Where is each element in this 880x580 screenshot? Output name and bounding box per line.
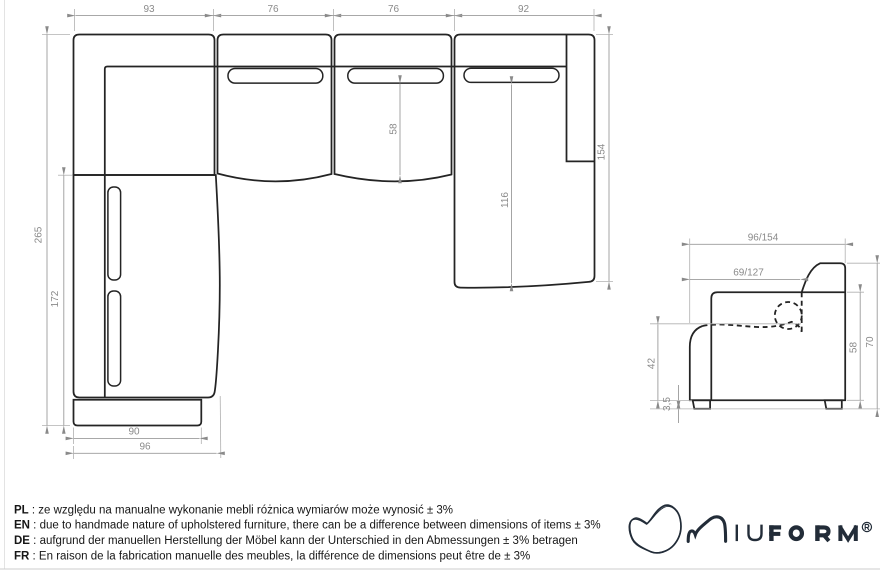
svg-text:76: 76 [267,4,279,15]
svg-text:90: 90 [128,427,140,438]
svg-text:58: 58 [389,123,400,135]
svg-text:92: 92 [518,4,530,15]
svg-text:172: 172 [50,290,61,307]
svg-text:154: 154 [597,143,608,160]
svg-text:PL : ze względu na manualne wy: PL : ze względu na manualne wykonanie me… [14,504,453,516]
svg-text:EN : due to handmade nature of: EN : due to handmade nature of upholster… [14,519,601,531]
svg-text:69/127: 69/127 [733,268,764,279]
svg-text:DE : aufgrund der manuellen He: DE : aufgrund der manuellen Herstellung … [14,535,578,547]
svg-text:42: 42 [647,358,658,370]
svg-text:116: 116 [500,192,511,208]
svg-text:58: 58 [849,342,860,354]
svg-text:265: 265 [34,226,45,243]
svg-text:70: 70 [865,336,876,348]
svg-text:FR : En raison de la fabricati: FR : En raison de la fabrication manuell… [14,551,530,563]
svg-text:96: 96 [139,442,151,453]
svg-text:96/154: 96/154 [748,233,779,244]
svg-text:93: 93 [143,4,155,15]
svg-text:3,5: 3,5 [662,397,673,411]
svg-text:76: 76 [388,4,400,15]
